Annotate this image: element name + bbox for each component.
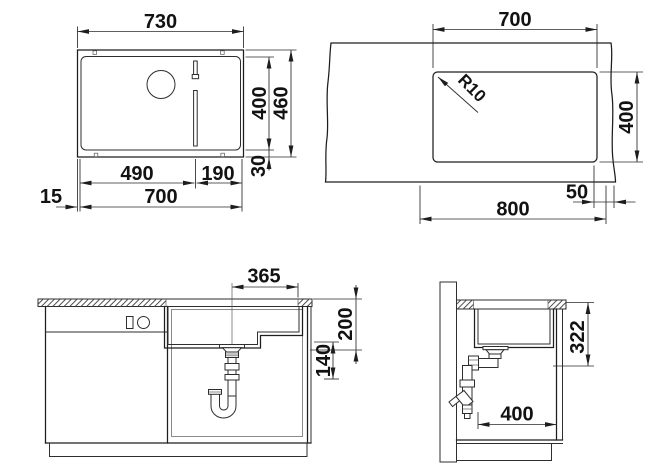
appliance-knob (138, 317, 150, 329)
dim-drain-height: 322 (567, 320, 589, 353)
cabinet-front (46, 307, 312, 457)
countertop-hatch-edge (548, 300, 566, 309)
bowl-front (165, 307, 303, 349)
countertop-hatch-wall (457, 300, 474, 309)
dim-cutout-width: 700 (498, 9, 531, 31)
dim-outer-width: 730 (144, 11, 177, 33)
divider-rail (192, 61, 198, 146)
appliance-button (127, 317, 134, 329)
dim-drain-clearance: 140 (313, 344, 335, 377)
dim-cutout-depth: 400 (616, 100, 638, 133)
front-section-dimensions: 365 200 140 (232, 266, 362, 380)
cutout-view: R10 700 400 50 800 (326, 9, 644, 224)
countertop-hatch-left (38, 299, 166, 307)
drawing-canvas: 730 400 460 30 490 190 700 15 R10 (0, 0, 670, 471)
dim-bowl-section: 490 (120, 163, 153, 185)
drain-hole (147, 71, 175, 99)
siphon-front (209, 345, 245, 419)
dim-drain-offset: 365 (247, 266, 280, 288)
dim-wall-clearance: 400 (500, 404, 533, 426)
dim-inner-width: 700 (144, 186, 177, 208)
dim-edge-distance: 50 (566, 182, 588, 204)
dim-edge-offset: 15 (40, 186, 62, 208)
dim-bottom-offset: 30 (248, 155, 270, 177)
countertop-hatch-right (298, 299, 312, 307)
top-view: 730 400 460 30 490 190 700 15 (40, 11, 297, 212)
dim-ledge-section: 190 (201, 163, 234, 185)
dim-min-cabinet-width: 800 (496, 199, 529, 221)
dim-inner-height: 400 (249, 86, 271, 119)
sink-technical-drawing: 730 400 460 30 490 190 700 15 R10 (0, 0, 670, 471)
dim-outer-height: 460 (271, 86, 293, 119)
bowl-side (475, 309, 554, 348)
wall-section (440, 282, 457, 462)
side-section-view: 322 400 (440, 282, 594, 462)
front-section-view: 365 200 140 (38, 266, 362, 457)
siphon-side (449, 347, 508, 419)
dim-bowl-depth: 200 (335, 307, 357, 340)
